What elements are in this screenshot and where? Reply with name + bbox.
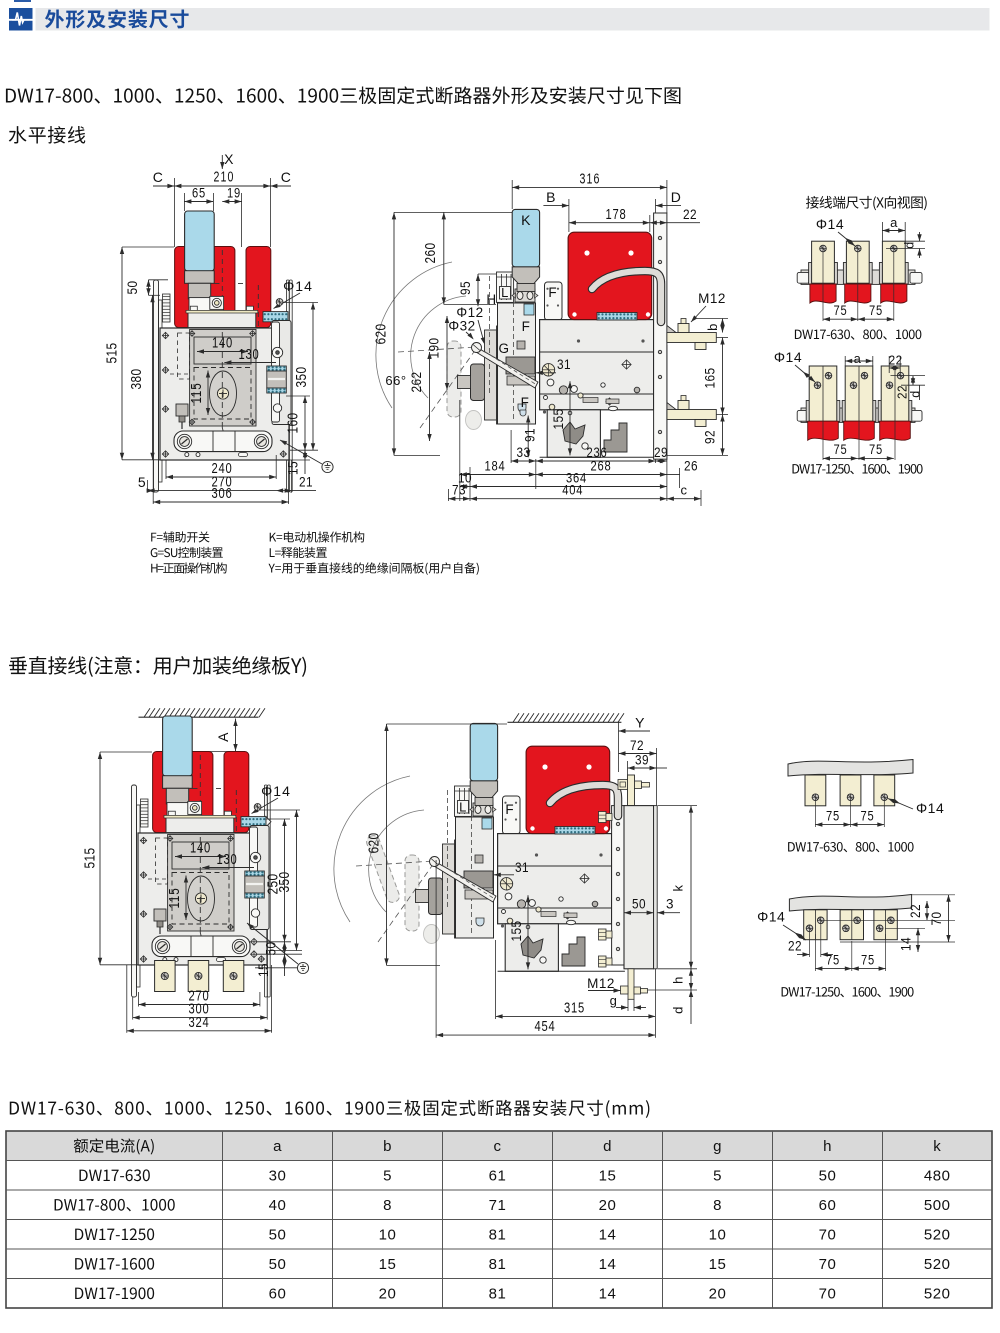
- svg-text:8: 8: [383, 1197, 392, 1214]
- svg-text:Φ14: Φ14: [774, 349, 802, 365]
- svg-text:F: F: [505, 802, 514, 817]
- svg-text:81: 81: [489, 1256, 507, 1273]
- svg-text:C: C: [153, 169, 164, 185]
- svg-text:14: 14: [599, 1286, 617, 1303]
- svg-text:140: 140: [212, 336, 233, 352]
- svg-text:B: B: [546, 189, 556, 205]
- svg-text:22: 22: [896, 385, 910, 399]
- svg-text:10: 10: [709, 1227, 727, 1244]
- svg-text:31: 31: [515, 859, 529, 875]
- svg-text:91: 91: [523, 428, 538, 442]
- svg-text:Φ14: Φ14: [916, 800, 944, 816]
- svg-text:75: 75: [834, 302, 848, 318]
- svg-text:268: 268: [591, 458, 612, 474]
- svg-text:Φ14: Φ14: [261, 783, 291, 799]
- svg-text:5: 5: [383, 1168, 392, 1185]
- svg-text:15: 15: [709, 1256, 727, 1273]
- svg-text:60: 60: [269, 1286, 287, 1303]
- svg-text:Φ14: Φ14: [816, 216, 844, 232]
- svg-text:14: 14: [599, 1256, 617, 1273]
- svg-text:404: 404: [562, 482, 583, 498]
- svg-text:k: k: [671, 885, 686, 892]
- svg-text:160: 160: [285, 413, 302, 434]
- svg-text:Φ14: Φ14: [757, 909, 785, 925]
- svg-text:22: 22: [788, 939, 802, 954]
- svg-text:70: 70: [819, 1256, 837, 1273]
- svg-text:50: 50: [819, 1168, 837, 1185]
- svg-text:480: 480: [924, 1168, 951, 1185]
- svg-text:D: D: [671, 189, 682, 205]
- svg-text:71: 71: [489, 1197, 507, 1214]
- svg-text:72: 72: [630, 738, 644, 753]
- svg-text:50: 50: [269, 1256, 287, 1273]
- svg-text:Φ32: Φ32: [448, 319, 475, 334]
- svg-text:14: 14: [899, 937, 914, 951]
- svg-text:22: 22: [908, 904, 923, 918]
- svg-text:c: c: [681, 483, 688, 498]
- svg-text:F: F: [521, 395, 530, 410]
- svg-text:515: 515: [104, 343, 121, 364]
- svg-text:30: 30: [269, 1168, 287, 1185]
- svg-text:515: 515: [82, 848, 99, 869]
- svg-text:155: 155: [550, 409, 566, 430]
- svg-text:26: 26: [684, 459, 698, 474]
- svg-text:81: 81: [489, 1227, 507, 1244]
- svg-text:73: 73: [452, 483, 466, 498]
- svg-text:60: 60: [819, 1197, 837, 1214]
- svg-text:a: a: [890, 215, 898, 230]
- svg-text:29: 29: [654, 445, 668, 460]
- svg-text:70: 70: [819, 1286, 837, 1303]
- svg-text:210: 210: [214, 170, 235, 186]
- svg-text:75: 75: [861, 952, 875, 968]
- svg-text:a: a: [273, 1138, 282, 1155]
- svg-text:75: 75: [869, 441, 883, 457]
- svg-text:316: 316: [580, 172, 601, 188]
- svg-text:20: 20: [599, 1197, 617, 1214]
- svg-text:75: 75: [826, 808, 840, 824]
- svg-text:k: k: [933, 1138, 941, 1155]
- svg-text:10: 10: [379, 1227, 397, 1244]
- svg-text:70: 70: [819, 1227, 837, 1244]
- svg-text:306: 306: [212, 486, 233, 502]
- svg-text:H: H: [486, 292, 496, 307]
- svg-text:c: c: [494, 1138, 502, 1155]
- svg-text:M12: M12: [698, 291, 726, 306]
- svg-text:520: 520: [924, 1227, 951, 1244]
- svg-text:g: g: [610, 993, 618, 1008]
- svg-text:61: 61: [489, 1168, 507, 1185]
- svg-text:8: 8: [713, 1197, 722, 1214]
- svg-text:50: 50: [264, 942, 279, 956]
- svg-text:g: g: [713, 1138, 722, 1155]
- svg-text:140: 140: [190, 841, 211, 857]
- svg-text:d: d: [603, 1138, 612, 1155]
- svg-text:70: 70: [929, 912, 944, 926]
- svg-text:260: 260: [422, 243, 439, 264]
- svg-text:66°: 66°: [385, 373, 406, 388]
- svg-text:75: 75: [869, 302, 883, 318]
- svg-text:454: 454: [535, 1019, 556, 1035]
- svg-text:315: 315: [564, 1000, 585, 1016]
- svg-text:184: 184: [485, 458, 506, 474]
- svg-text:520: 520: [924, 1286, 951, 1303]
- svg-text:40: 40: [269, 1197, 287, 1214]
- svg-text:262: 262: [408, 372, 424, 393]
- svg-text:380: 380: [128, 369, 145, 390]
- svg-text:L: L: [501, 285, 509, 300]
- svg-text:a: a: [854, 351, 862, 366]
- svg-text:324: 324: [189, 1015, 210, 1031]
- svg-text:19: 19: [227, 185, 241, 201]
- svg-text:95: 95: [457, 281, 473, 295]
- svg-text:5: 5: [713, 1168, 722, 1185]
- svg-text:Φ14: Φ14: [283, 278, 313, 294]
- svg-text:250: 250: [265, 874, 282, 895]
- svg-text:75: 75: [834, 441, 848, 457]
- svg-text:h: h: [671, 976, 686, 984]
- svg-text:190: 190: [426, 338, 442, 359]
- svg-text:15: 15: [599, 1168, 617, 1185]
- svg-text:178: 178: [606, 207, 627, 223]
- svg-text:b: b: [383, 1138, 392, 1155]
- svg-text:5: 5: [138, 474, 146, 490]
- svg-text:50: 50: [632, 897, 646, 912]
- svg-text:350: 350: [293, 367, 310, 388]
- svg-text:22: 22: [683, 206, 697, 222]
- svg-text:500: 500: [924, 1197, 951, 1214]
- svg-text:115: 115: [189, 383, 205, 404]
- svg-text:F: F: [522, 319, 531, 334]
- svg-text:K: K: [521, 212, 531, 228]
- svg-text:20: 20: [709, 1286, 727, 1303]
- svg-text:115: 115: [167, 888, 183, 909]
- svg-text:65: 65: [192, 185, 206, 201]
- svg-text:620: 620: [366, 833, 383, 854]
- svg-text:d: d: [909, 390, 923, 397]
- svg-text:75: 75: [826, 952, 840, 968]
- svg-text:A: A: [215, 732, 231, 742]
- svg-text:d: d: [903, 241, 917, 248]
- svg-text:C: C: [281, 169, 292, 185]
- svg-text:50: 50: [124, 281, 140, 295]
- svg-text:520: 520: [924, 1256, 951, 1273]
- svg-text:39: 39: [635, 753, 649, 768]
- svg-text:14: 14: [599, 1227, 617, 1244]
- svg-text:L: L: [459, 800, 467, 815]
- svg-text:X: X: [224, 151, 234, 167]
- svg-text:75: 75: [861, 808, 875, 824]
- svg-text:15: 15: [379, 1256, 397, 1273]
- svg-text:h: h: [823, 1138, 832, 1155]
- svg-text:31: 31: [557, 356, 571, 372]
- svg-text:G: G: [498, 341, 509, 356]
- svg-text:F: F: [548, 285, 557, 300]
- svg-text:21: 21: [299, 474, 313, 490]
- svg-text:165: 165: [702, 368, 718, 389]
- svg-text:130: 130: [239, 347, 260, 363]
- svg-text:50: 50: [269, 1227, 287, 1244]
- svg-text:15: 15: [256, 963, 271, 977]
- svg-text:33: 33: [517, 445, 531, 460]
- svg-text:20: 20: [379, 1286, 397, 1303]
- svg-text:Y: Y: [635, 715, 645, 731]
- svg-text:92: 92: [702, 430, 718, 444]
- svg-text:130: 130: [217, 852, 238, 868]
- svg-text:M12: M12: [587, 976, 615, 991]
- svg-text:d: d: [671, 1006, 686, 1014]
- svg-text:155: 155: [508, 921, 524, 942]
- svg-text:81: 81: [489, 1286, 507, 1303]
- svg-text:3: 3: [666, 897, 674, 912]
- svg-text:b: b: [705, 323, 720, 331]
- svg-text:620: 620: [373, 324, 390, 345]
